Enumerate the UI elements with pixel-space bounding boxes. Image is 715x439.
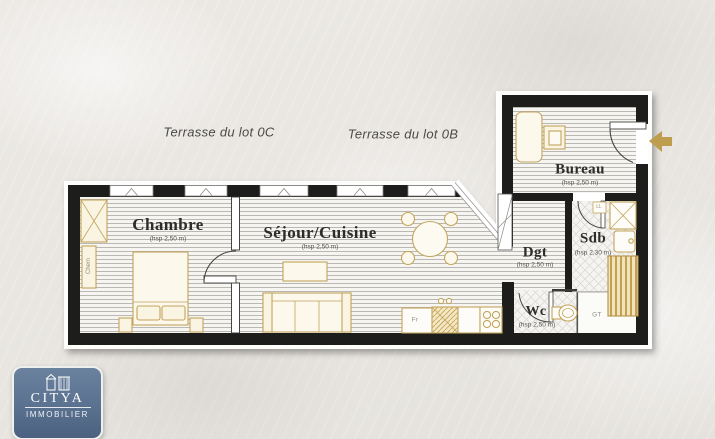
- window-symbol: [337, 186, 383, 197]
- wall-wc-stub: [552, 289, 577, 292]
- entry-arrow-icon: [649, 131, 672, 152]
- nightstand: [190, 318, 203, 332]
- floor-plan-drawing: [0, 0, 715, 439]
- washing-machine-marker: [593, 202, 606, 213]
- fridge: [402, 308, 432, 333]
- window-symbol: [260, 186, 308, 197]
- chimney-flue: [82, 246, 96, 288]
- desk: [516, 112, 542, 162]
- toilet: [552, 305, 577, 321]
- logo-divider: [25, 407, 91, 408]
- floor-plan-canvas: Terrasse du lot 0C Terrasse du lot 0B Ch…: [0, 0, 715, 439]
- cooktop: [480, 307, 502, 333]
- window-symbol: [408, 186, 455, 197]
- wardrobe: [81, 200, 107, 242]
- shower: [608, 256, 638, 316]
- window-symbol: [185, 186, 227, 197]
- wall-hall-bathroom: [565, 201, 572, 292]
- citya-logo: CITYA IMMOBILIER: [12, 366, 103, 439]
- kitchen-counter: [458, 307, 480, 333]
- double-bed: [133, 252, 188, 325]
- buildings-icon: [43, 372, 73, 391]
- logo-brand-text: CITYA: [31, 391, 85, 406]
- door-leaf-bureau: [498, 194, 512, 250]
- coffee-table: [283, 262, 327, 281]
- washbasin: [614, 231, 635, 252]
- desk-chair: [544, 126, 565, 149]
- door-gap-bathroom: [573, 193, 605, 201]
- logo-tagline-text: IMMOBILIER: [26, 410, 89, 420]
- storage-column: [610, 202, 636, 229]
- sofa: [263, 293, 351, 332]
- nightstand: [119, 318, 132, 332]
- window-symbol: [110, 186, 153, 197]
